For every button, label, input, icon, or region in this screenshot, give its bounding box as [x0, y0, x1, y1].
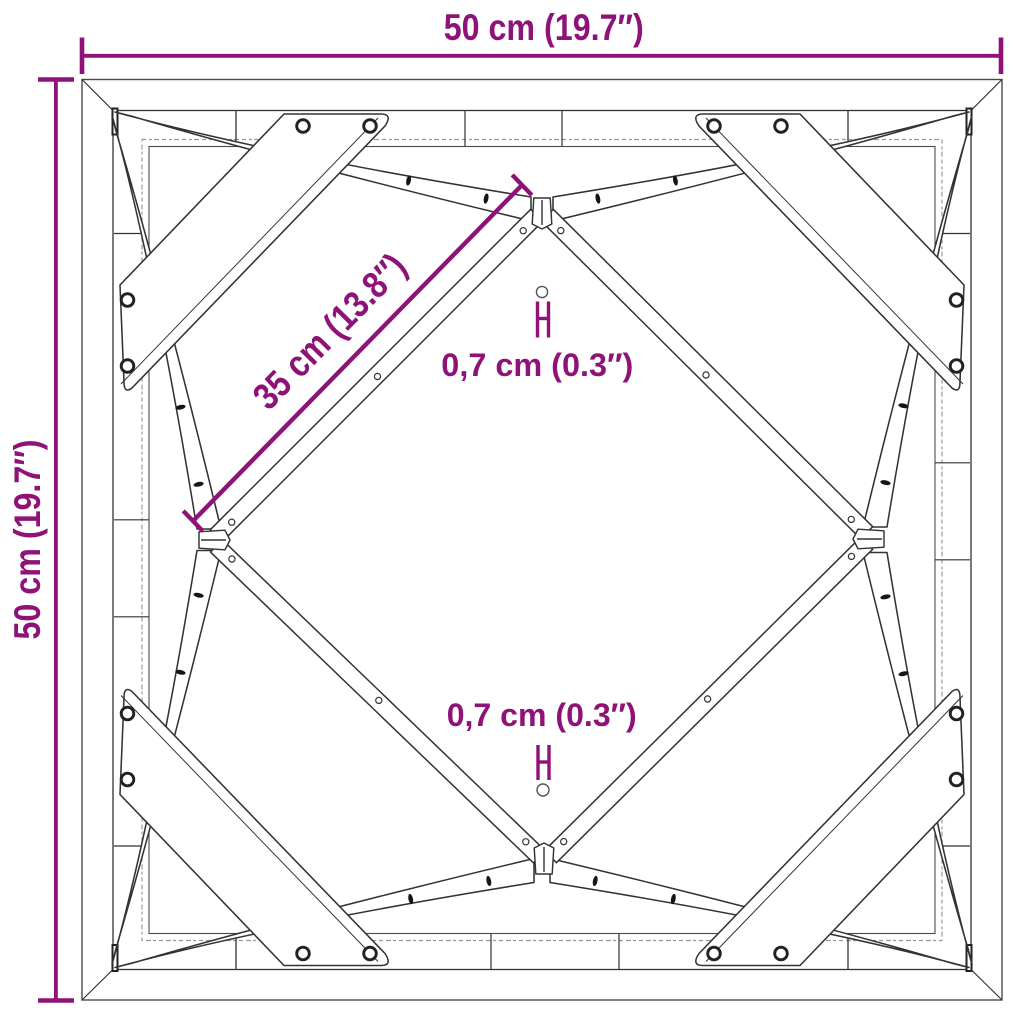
svg-text:50 cm (19.7″): 50 cm (19.7″) [6, 440, 48, 640]
svg-text:50 cm (19.7″): 50 cm (19.7″) [444, 6, 644, 48]
svg-text:0,7 cm (0.3″): 0,7 cm (0.3″) [447, 697, 637, 733]
svg-text:0,7 cm (0.3″): 0,7 cm (0.3″) [441, 347, 633, 383]
